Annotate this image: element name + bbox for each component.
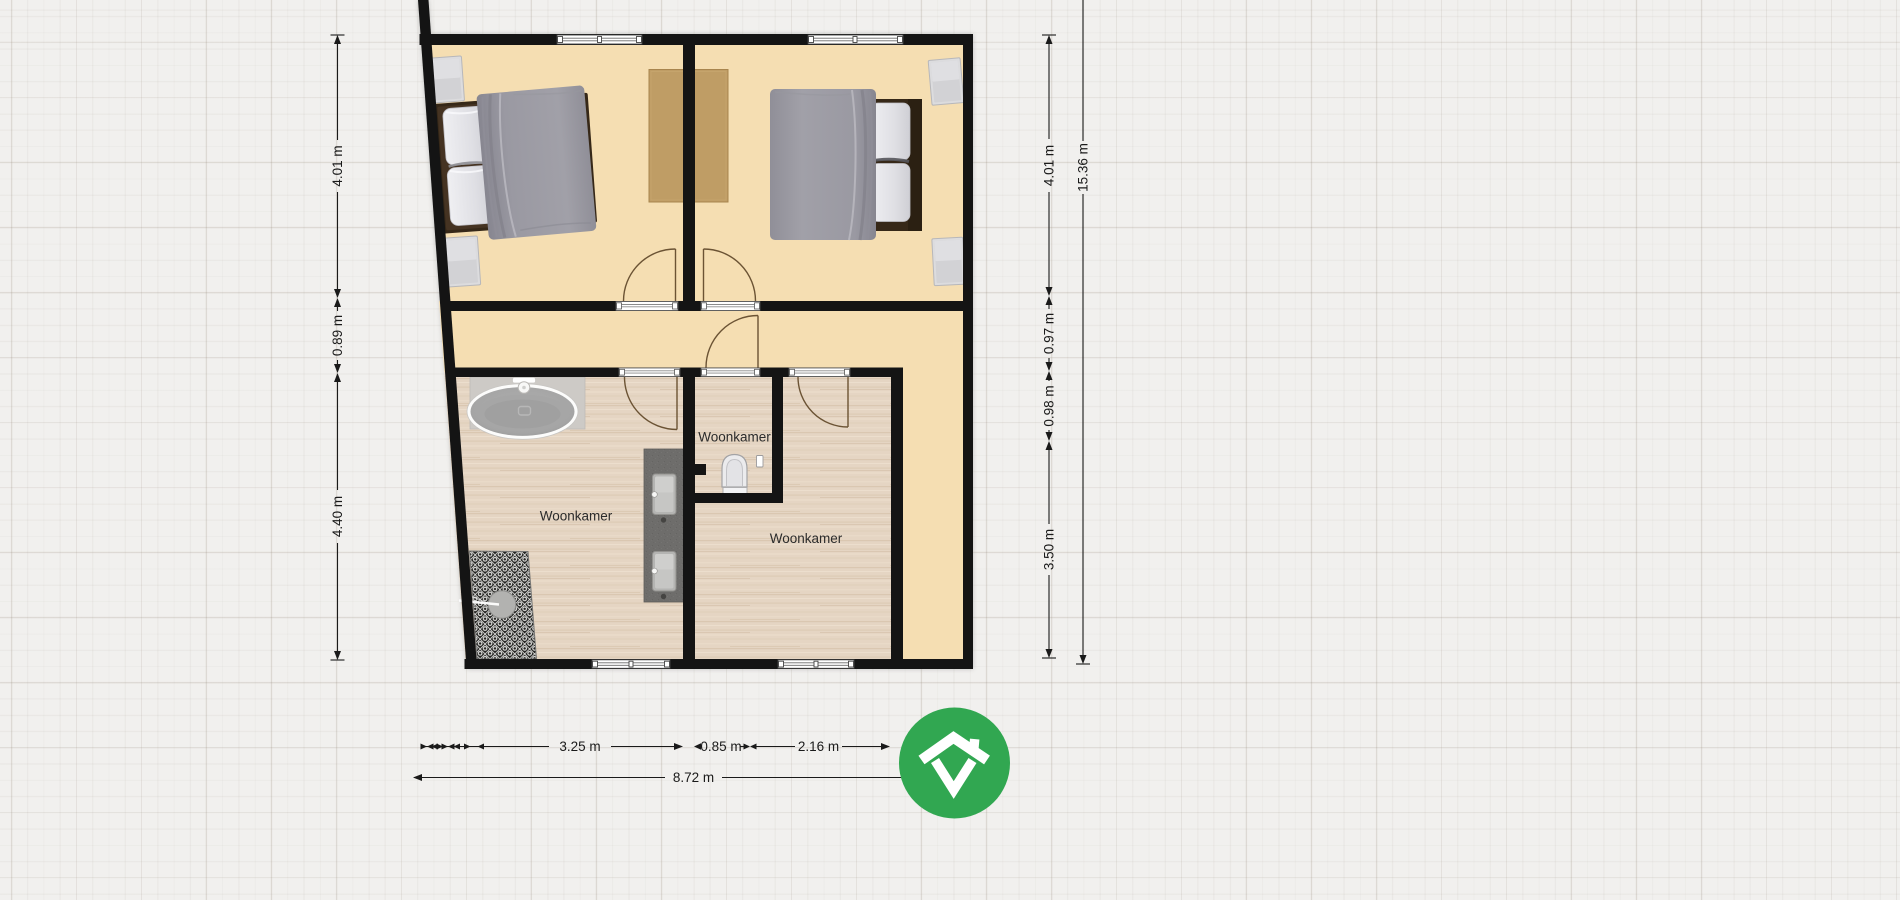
svg-text:2.16 m: 2.16 m	[798, 739, 839, 754]
svg-text:4.01 m: 4.01 m	[1042, 145, 1057, 186]
svg-text:0.97 m: 0.97 m	[1042, 313, 1057, 354]
svg-text:4.40 m: 4.40 m	[330, 496, 345, 537]
svg-text:Woonkamer: Woonkamer	[698, 430, 771, 445]
svg-text:8.72 m: 8.72 m	[673, 770, 714, 785]
svg-text:15.36 m: 15.36 m	[1076, 143, 1091, 192]
svg-text:Woonkamer: Woonkamer	[540, 509, 613, 524]
svg-text:3.25 m: 3.25 m	[559, 739, 600, 754]
svg-text:3.50 m: 3.50 m	[1042, 529, 1057, 570]
svg-text:0.98 m: 0.98 m	[1042, 385, 1057, 426]
svg-text:4.01 m: 4.01 m	[330, 145, 345, 186]
svg-text:0.89 m: 0.89 m	[330, 315, 345, 356]
svg-text:0.85 m: 0.85 m	[700, 739, 741, 754]
svg-text:Woonkamer: Woonkamer	[770, 531, 843, 546]
